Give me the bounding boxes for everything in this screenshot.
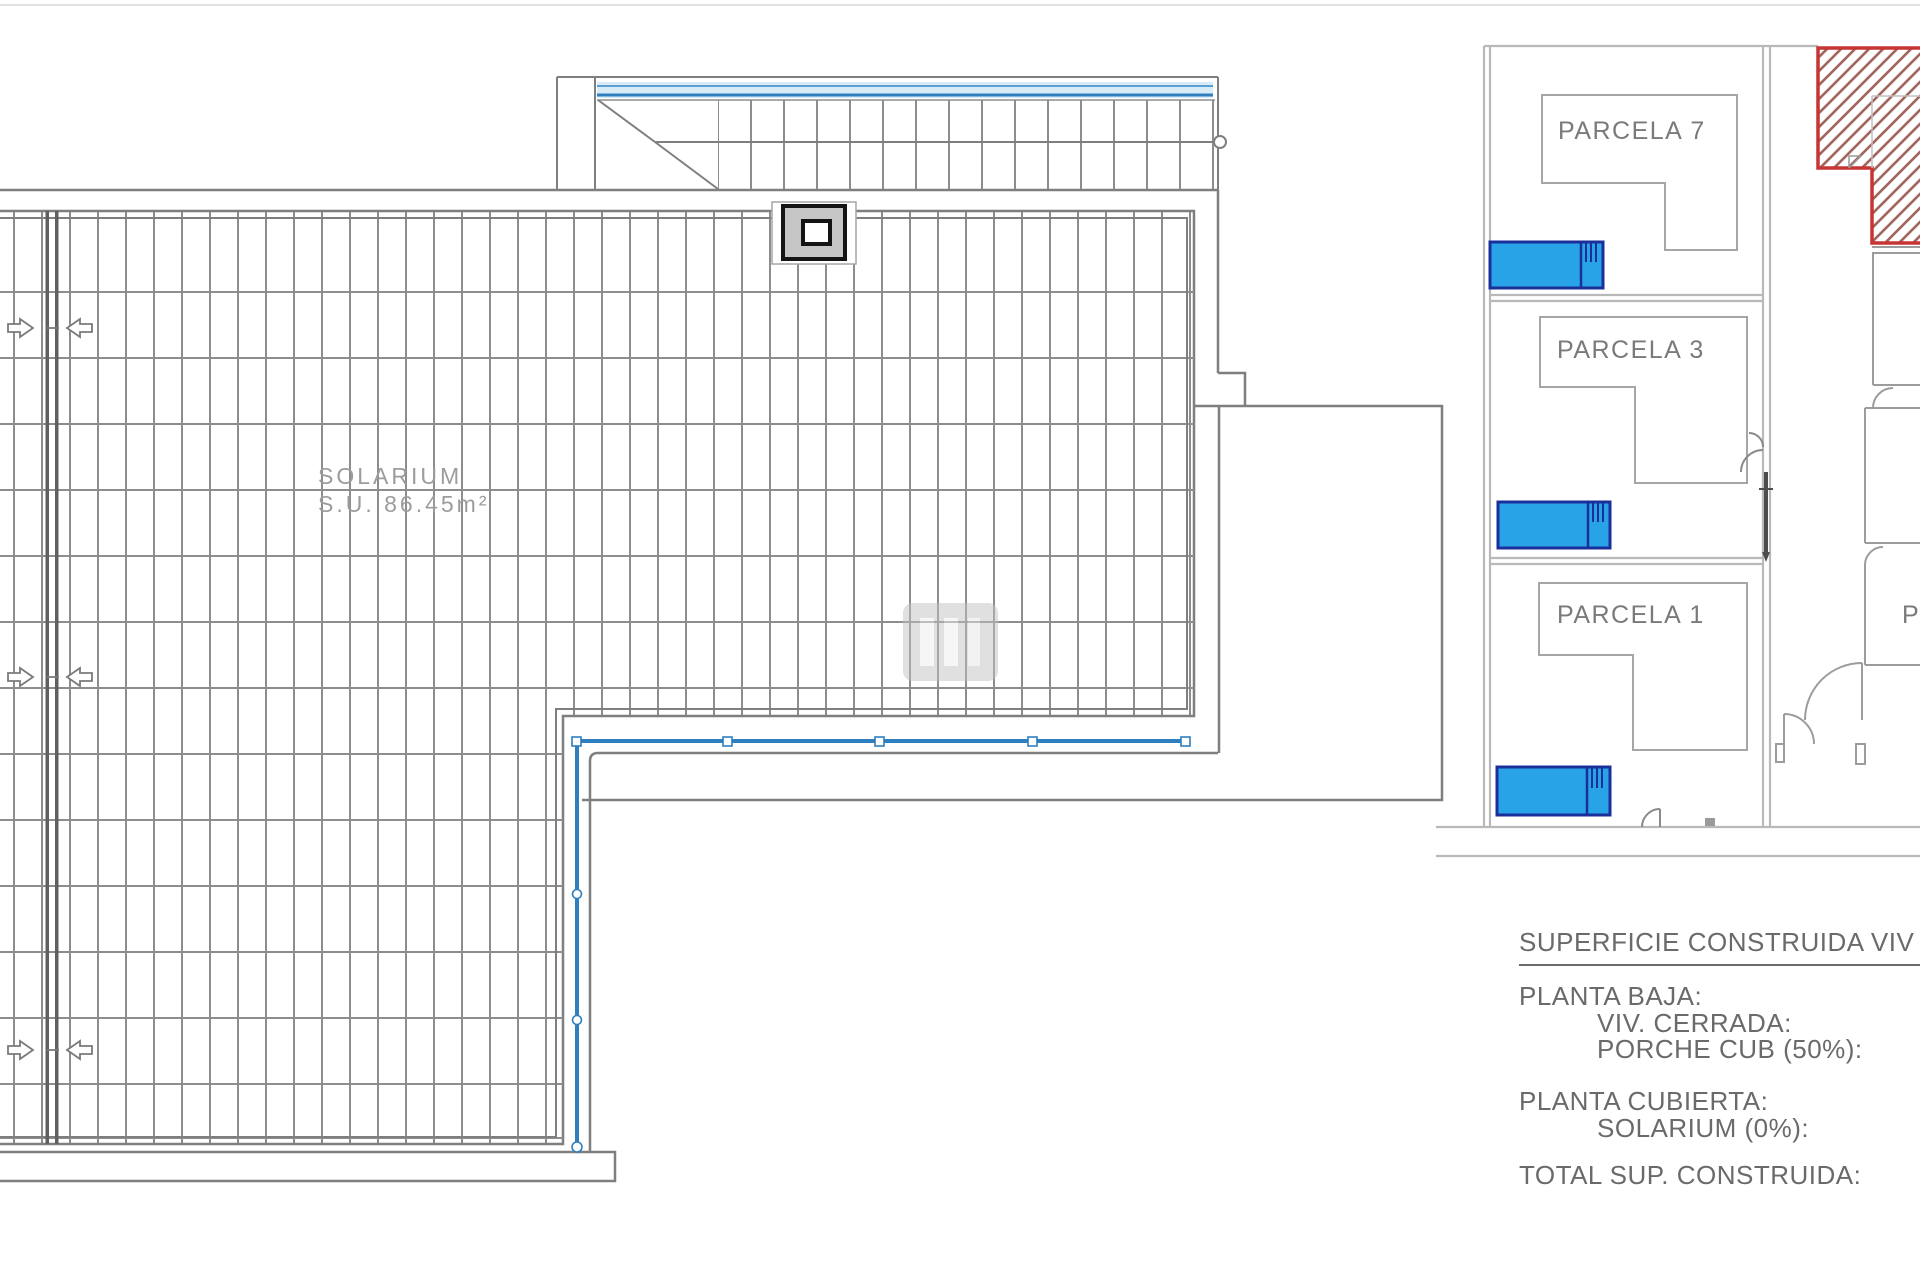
chimney bbox=[772, 202, 856, 264]
solarium-label: SOLARIUM bbox=[318, 463, 462, 490]
door-swing-arc bbox=[1784, 714, 1814, 744]
pool-parcel7 bbox=[1490, 242, 1603, 288]
parcel1-label: PARCELA 1 bbox=[1557, 601, 1705, 630]
summary-porche-cub: PORCHE CUB (50%): bbox=[1597, 1034, 1863, 1065]
solarium-hatched-area bbox=[0, 211, 1194, 1144]
stair-newel-circle bbox=[1214, 136, 1226, 148]
door-swing-arc bbox=[1805, 663, 1862, 720]
parcel7-label: PARCELA 7 bbox=[1558, 117, 1706, 146]
surface-summary: SUPERFICIE CONSTRUIDA VIV 3 bbox=[1519, 927, 1920, 966]
stair-break-line bbox=[598, 100, 718, 189]
pool-parcel3 bbox=[1498, 502, 1610, 548]
parcel3-label: PARCELA 3 bbox=[1557, 336, 1705, 365]
neighbor-buildings bbox=[1776, 247, 1920, 764]
chimney-flue bbox=[803, 221, 830, 244]
architectural-drawing-sheet: SOLARIUM S.U. 86.45m² PARCELA 7 PARCELA … bbox=[0, 0, 1920, 1280]
solarium-area-value: S.U. 86.45m² bbox=[318, 491, 490, 518]
roof-plan bbox=[0, 190, 1442, 1181]
stair-treads bbox=[718, 100, 1215, 189]
neighbor-parcel-label: P bbox=[1902, 601, 1919, 630]
staircase bbox=[557, 77, 1226, 190]
summary-title: SUPERFICIE CONSTRUIDA VIV 3 bbox=[1519, 927, 1920, 966]
summary-total: TOTAL SUP. CONSTRUIDA: bbox=[1519, 1160, 1861, 1191]
site-plan bbox=[1436, 46, 1920, 856]
pool-parcel1 bbox=[1497, 767, 1610, 815]
highlighted-villa bbox=[1818, 48, 1920, 243]
watermark bbox=[903, 603, 998, 681]
summary-solarium-pct: SOLARIUM (0%): bbox=[1597, 1113, 1809, 1144]
